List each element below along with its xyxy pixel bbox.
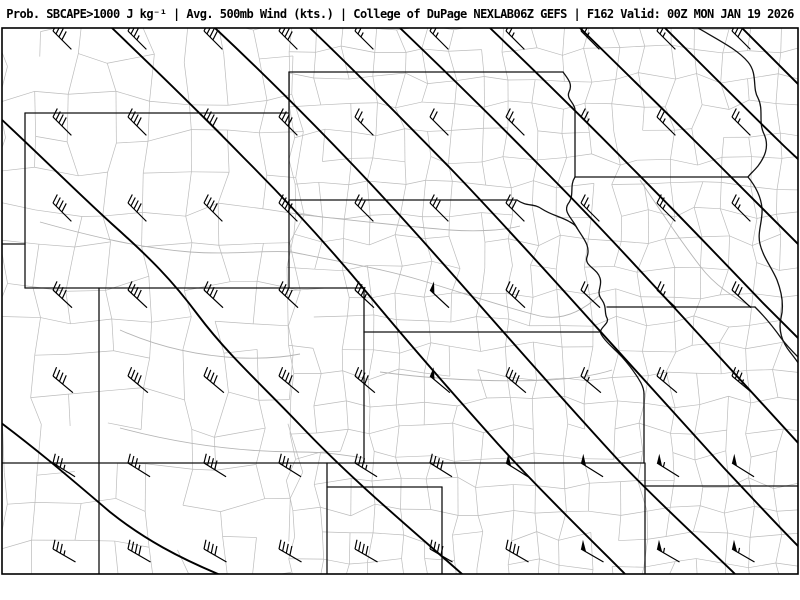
wind-barb [732, 195, 750, 222]
wind-barb [204, 367, 224, 393]
wind-barb [355, 109, 373, 136]
state-border [563, 72, 575, 177]
wind-barb [506, 109, 524, 136]
wind-barb [732, 540, 755, 562]
weather-map [0, 0, 800, 600]
wind-barb [53, 195, 71, 222]
weather-map-page: { "title_bar": { "text": "Prob. SBCAPE>1… [0, 0, 800, 600]
wind-barb [355, 195, 373, 222]
wind-barb [355, 540, 378, 562]
wind-barb [53, 540, 76, 562]
contour-line [0, 118, 462, 574]
wind-barbs-layer [53, 23, 755, 562]
wind-barb [279, 195, 297, 222]
wind-barb [128, 195, 146, 222]
contour-line [310, 28, 800, 548]
wind-barb [53, 23, 71, 50]
contour-line [580, 28, 800, 246]
wind-barb [506, 195, 524, 222]
wind-barb [128, 454, 150, 477]
wind-barb [506, 540, 529, 562]
river [120, 330, 300, 358]
wind-barb [279, 367, 299, 393]
wind-barb [581, 454, 603, 477]
wind-barb [732, 109, 750, 136]
wind-barb [430, 195, 448, 222]
river [40, 222, 292, 253]
wind-barb [355, 367, 375, 393]
map-layers [0, 18, 800, 596]
wind-barb [279, 454, 301, 477]
wind-barb [657, 281, 676, 307]
wind-barb [430, 454, 452, 477]
map-frame [2, 28, 798, 574]
wind-barb [53, 367, 73, 393]
wind-barb [732, 23, 750, 50]
wind-barb [53, 281, 72, 307]
wind-barb [204, 281, 223, 307]
contour-line [742, 28, 800, 86]
river [292, 252, 600, 317]
wind-barb [279, 23, 297, 50]
wind-barb [128, 540, 151, 562]
contour-lines-layer [0, 28, 800, 574]
wind-barb [128, 281, 147, 307]
wind-barb [204, 23, 222, 50]
river [296, 214, 520, 231]
wind-barb [355, 23, 373, 50]
wind-barb [657, 540, 680, 562]
wind-barb [430, 367, 450, 393]
state-borders-layer [0, 28, 800, 574]
contour-line [0, 422, 218, 574]
wind-barb [657, 454, 679, 477]
wind-barb [430, 540, 453, 562]
wind-barb [430, 23, 448, 50]
